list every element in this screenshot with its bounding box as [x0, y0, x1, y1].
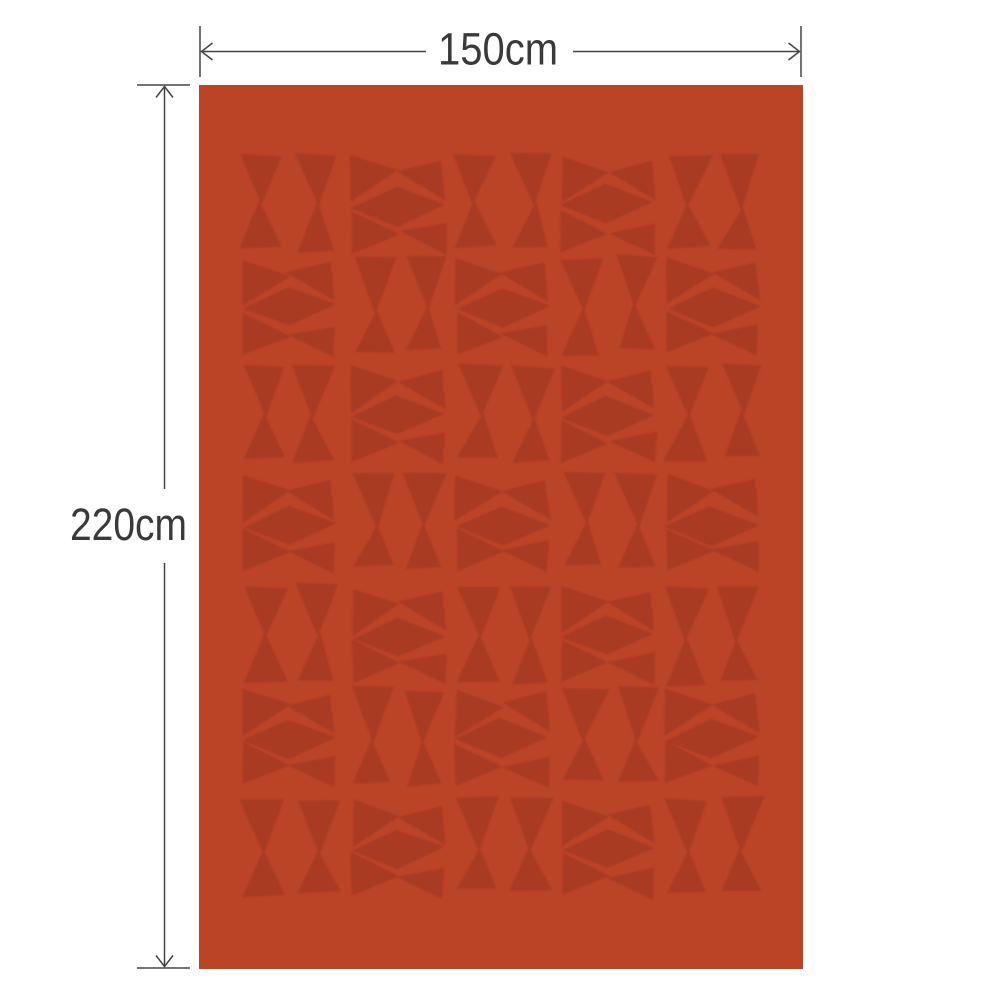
svg-text:150cm: 150cm: [438, 24, 558, 75]
svg-text:220cm: 220cm: [70, 499, 187, 550]
